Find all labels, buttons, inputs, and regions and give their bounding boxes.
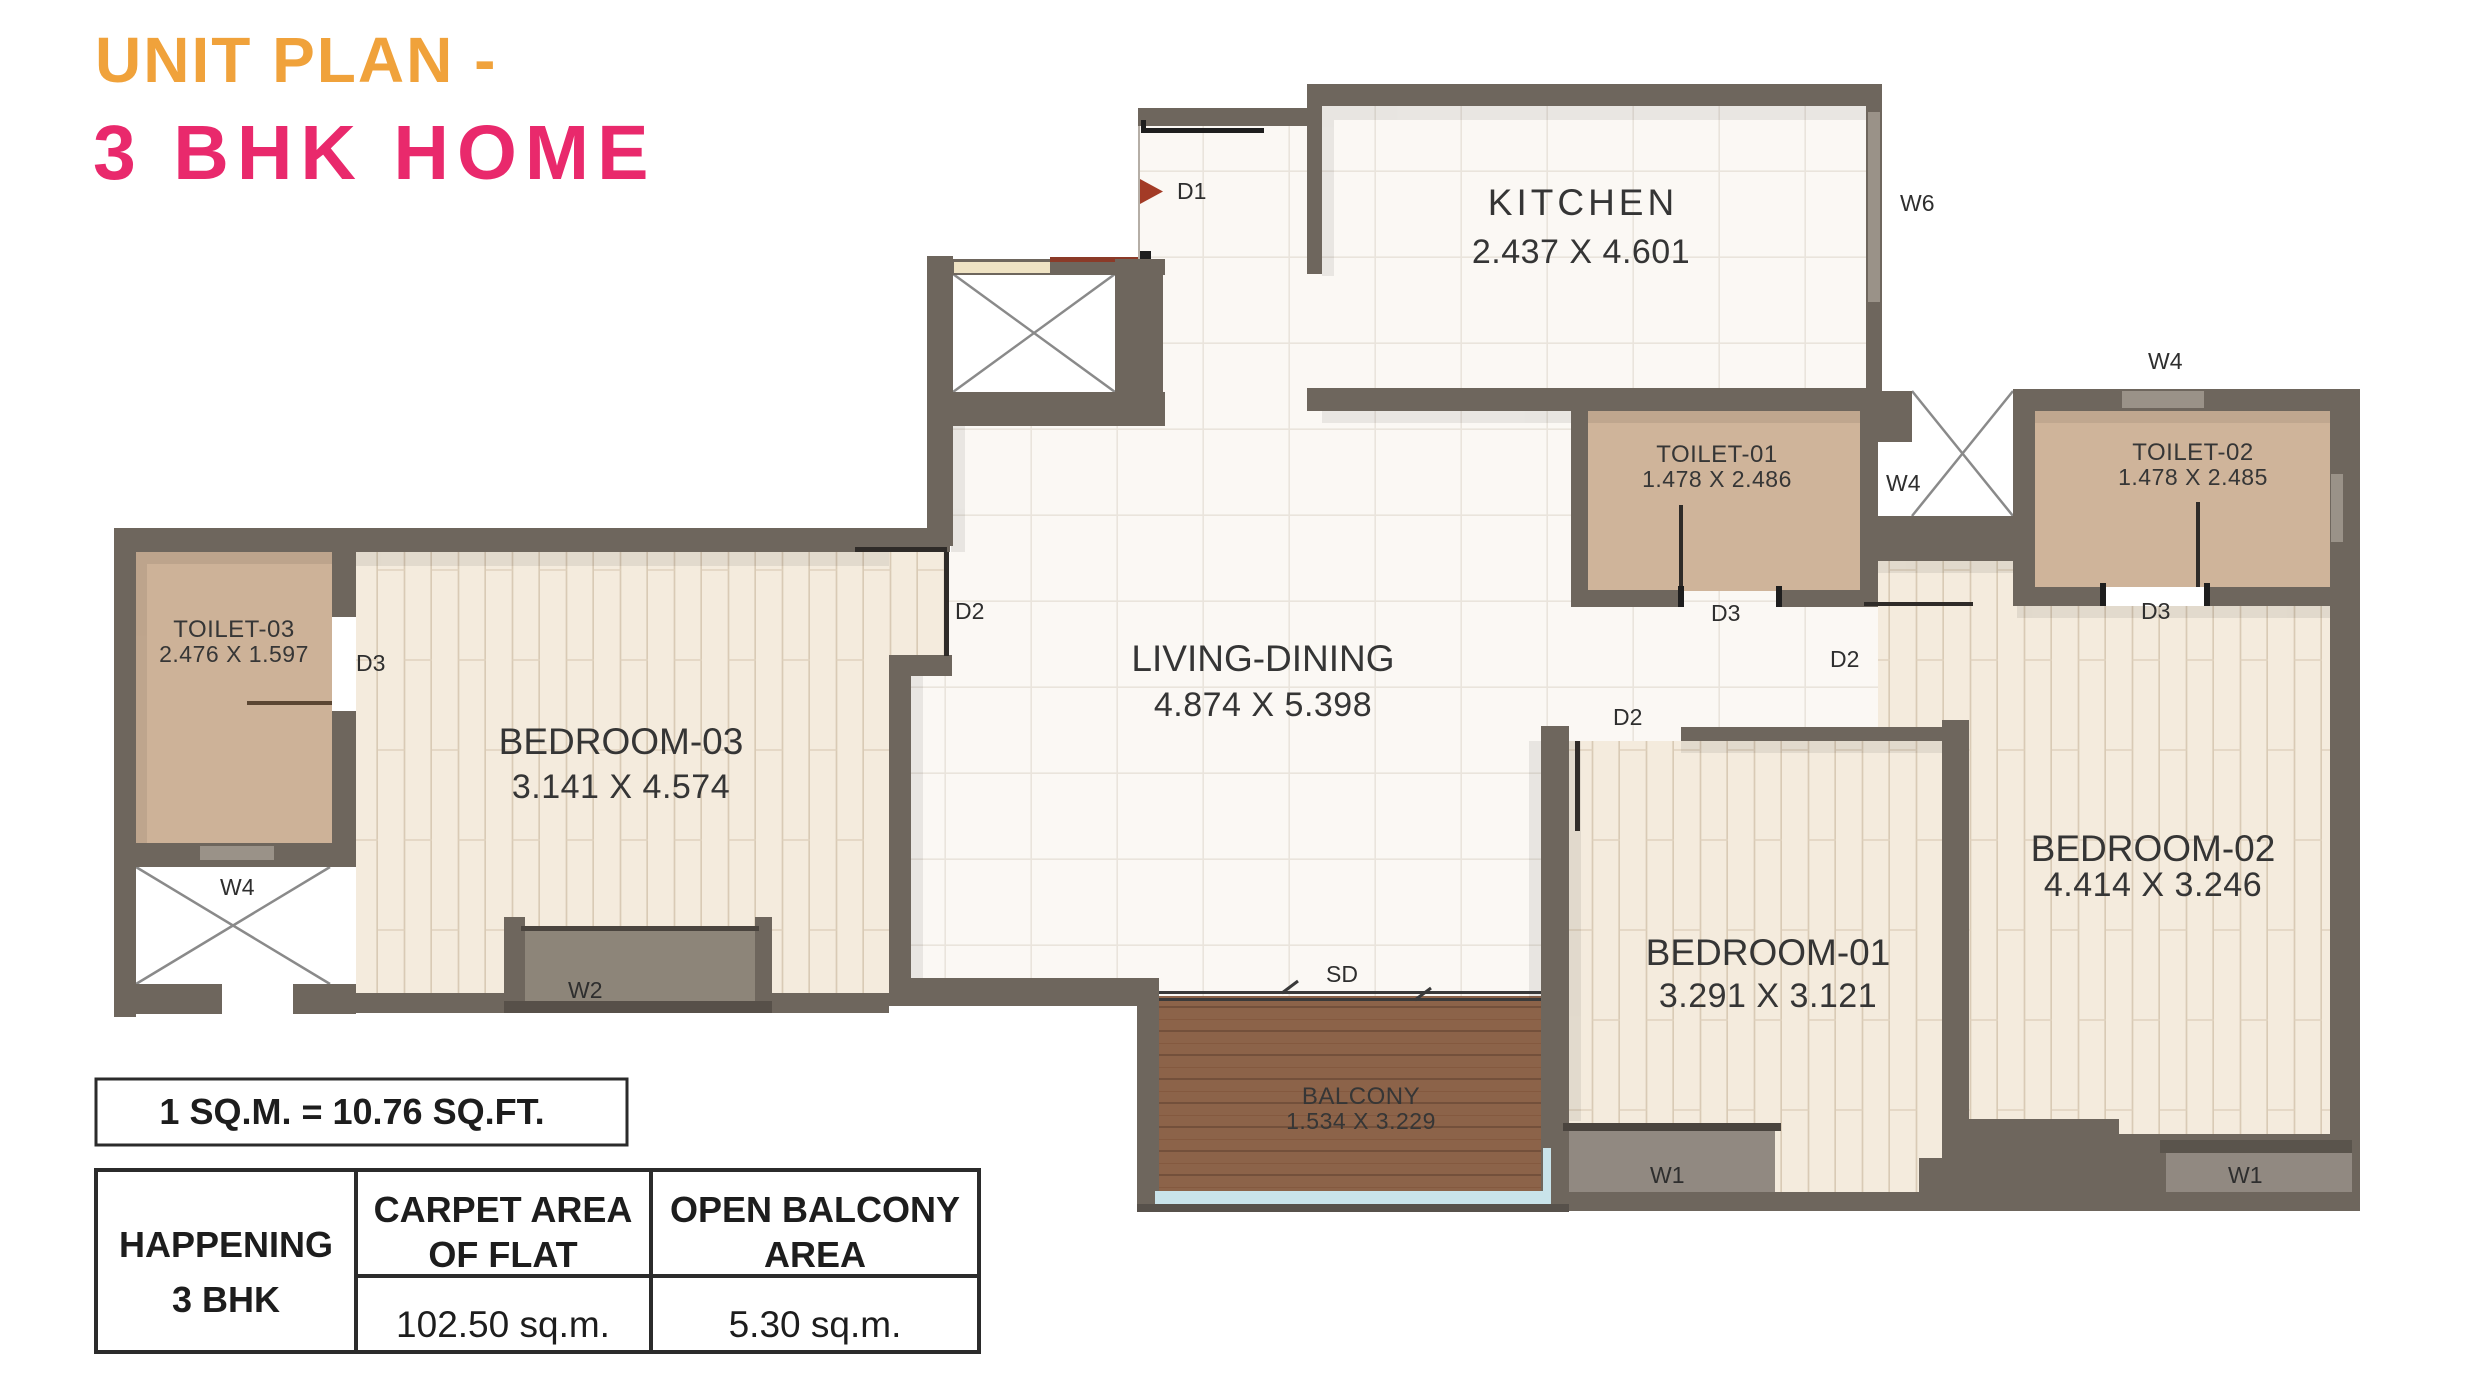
svg-text:4.414 X 3.246: 4.414 X 3.246 [2044, 866, 2262, 904]
svg-text:TOILET-03: TOILET-03 [173, 616, 294, 643]
svg-text:OF FLAT: OF FLAT [428, 1234, 577, 1275]
svg-text:D3: D3 [1711, 600, 1740, 626]
svg-text:HAPPENING: HAPPENING [119, 1224, 333, 1265]
svg-text:UNIT PLAN -: UNIT PLAN - [95, 24, 497, 96]
svg-text:D3: D3 [356, 650, 385, 676]
svg-text:1.534 X 3.229: 1.534 X 3.229 [1286, 1108, 1436, 1134]
svg-text:BEDROOM-03: BEDROOM-03 [499, 721, 744, 762]
svg-text:BALCONY: BALCONY [1302, 1083, 1420, 1110]
svg-text:W1: W1 [2228, 1162, 2263, 1188]
svg-text:KITCHEN: KITCHEN [1488, 182, 1678, 223]
svg-text:OPEN BALCONY: OPEN BALCONY [670, 1189, 960, 1230]
svg-text:1.478 X 2.486: 1.478 X 2.486 [1642, 466, 1792, 492]
svg-text:D3: D3 [2141, 598, 2170, 624]
svg-text:3.141 X 4.574: 3.141 X 4.574 [512, 768, 730, 806]
svg-text:SD: SD [1326, 961, 1358, 987]
svg-text:1 SQ.M. = 10.76 SQ.FT.: 1 SQ.M. = 10.76 SQ.FT. [159, 1091, 544, 1132]
svg-text:TOILET-02: TOILET-02 [2132, 439, 2253, 466]
svg-text:W6: W6 [1900, 190, 1935, 216]
svg-text:CARPET AREA: CARPET AREA [374, 1189, 633, 1230]
svg-text:W4: W4 [220, 874, 255, 900]
svg-text:W1: W1 [1650, 1162, 1685, 1188]
svg-text:4.874 X 5.398: 4.874 X 5.398 [1154, 686, 1372, 724]
svg-text:2.476 X 1.597: 2.476 X 1.597 [159, 641, 309, 667]
svg-text:3 BHK HOME: 3 BHK HOME [93, 110, 656, 196]
svg-text:D2: D2 [1613, 704, 1642, 730]
svg-text:W4: W4 [1886, 470, 1921, 496]
svg-text:5.30 sq.m.: 5.30 sq.m. [729, 1304, 902, 1345]
svg-text:BEDROOM-02: BEDROOM-02 [2031, 828, 2276, 869]
svg-text:D2: D2 [955, 598, 984, 624]
svg-text:D2: D2 [1830, 646, 1859, 672]
svg-text:2.437 X 4.601: 2.437 X 4.601 [1472, 233, 1690, 271]
svg-text:TOILET-01: TOILET-01 [1656, 441, 1777, 468]
svg-text:LIVING-DINING: LIVING-DINING [1131, 638, 1394, 679]
svg-text:BEDROOM-01: BEDROOM-01 [1646, 932, 1891, 973]
svg-text:3 BHK: 3 BHK [172, 1279, 280, 1320]
svg-text:102.50 sq.m.: 102.50 sq.m. [396, 1304, 610, 1345]
svg-text:D1: D1 [1177, 178, 1206, 204]
svg-text:W4: W4 [2148, 348, 2183, 374]
svg-text:3.291 X 3.121: 3.291 X 3.121 [1659, 977, 1877, 1015]
svg-text:W2: W2 [568, 977, 603, 1003]
svg-text:1.478 X 2.485: 1.478 X 2.485 [2118, 464, 2268, 490]
svg-text:AREA: AREA [764, 1234, 866, 1275]
